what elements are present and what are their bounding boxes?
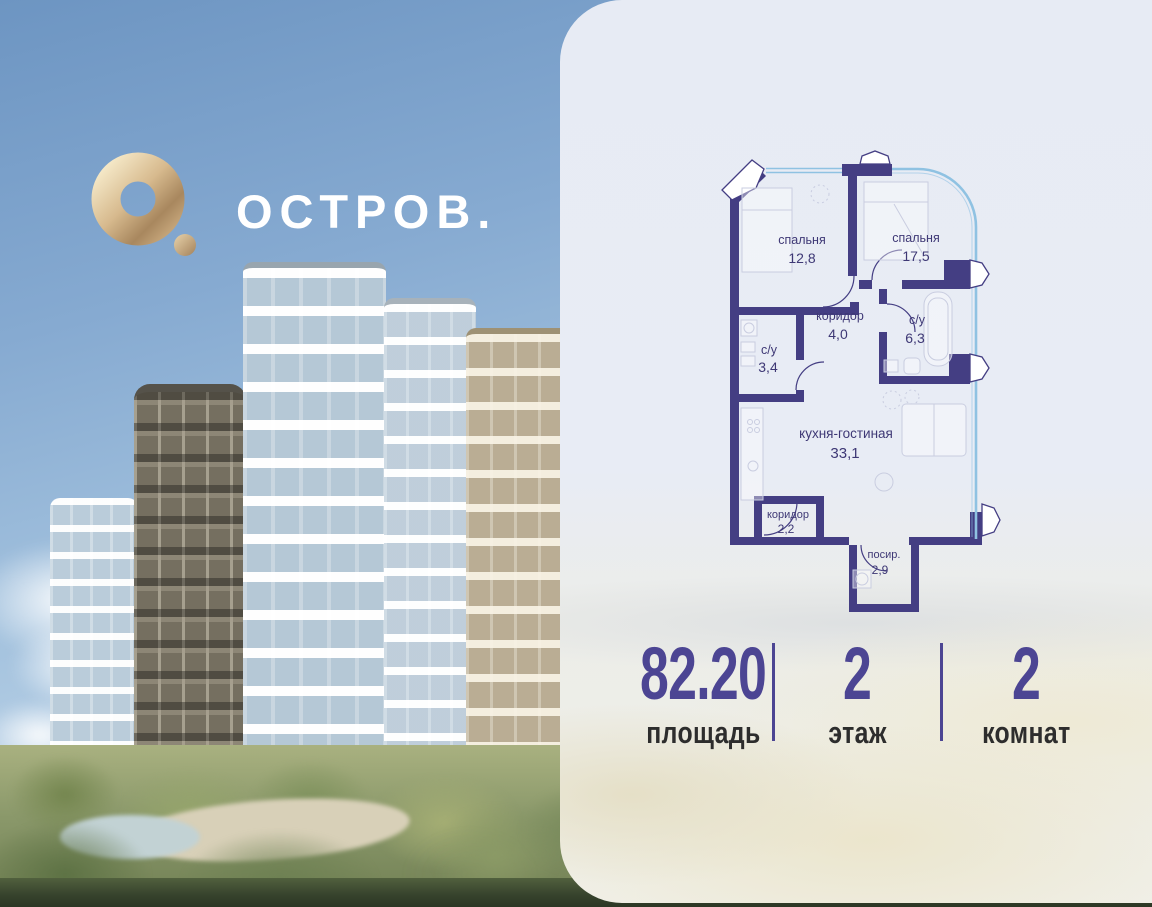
room-label: спальня [778, 233, 825, 247]
rooms-value: 2 [1012, 640, 1040, 708]
brand-logo: ОСТРОВ. [88, 152, 497, 262]
room-area: 17,5 [902, 248, 929, 264]
floor-value: 2 [843, 640, 871, 708]
room-label: коридор [816, 309, 864, 323]
apartment-card: спальня 12,8 спальня 17,5 коридор 4,0 с/… [560, 0, 1152, 903]
room-label: кухня-гостиная [799, 426, 893, 441]
room-area: 4,0 [828, 326, 848, 342]
room-label: спальня [892, 231, 939, 245]
area-value: 82.20 [640, 640, 766, 708]
stat-area: 82.20 площадь [634, 640, 772, 751]
room-area: 12,8 [788, 250, 815, 266]
room-label: коридор [767, 509, 809, 521]
room-area: 6,3 [905, 330, 925, 346]
room-area: 2,2 [778, 522, 795, 536]
rooms-label: комнат [982, 715, 1071, 751]
room-label: посир. [868, 549, 901, 561]
stat-floor: 2 этаж [775, 640, 940, 751]
floor-label: этаж [828, 715, 887, 751]
room-label: с/у [909, 313, 926, 327]
floor-plan: спальня 12,8 спальня 17,5 коридор 4,0 с/… [720, 150, 1022, 615]
area-label: площадь [646, 715, 760, 751]
logo-torus-icon [88, 152, 208, 262]
room-area: 33,1 [830, 445, 859, 462]
stat-rooms: 2 комнат [943, 640, 1109, 751]
room-label: с/у [761, 343, 778, 357]
room-area: 3,4 [758, 359, 778, 375]
page: ОСТРОВ. [0, 0, 1152, 907]
apartment-stats: 82.20 площадь 2 этаж 2 комнат [634, 640, 1112, 751]
room-area: 2,9 [872, 563, 889, 577]
brand-wordmark: ОСТРОВ. [236, 184, 497, 239]
